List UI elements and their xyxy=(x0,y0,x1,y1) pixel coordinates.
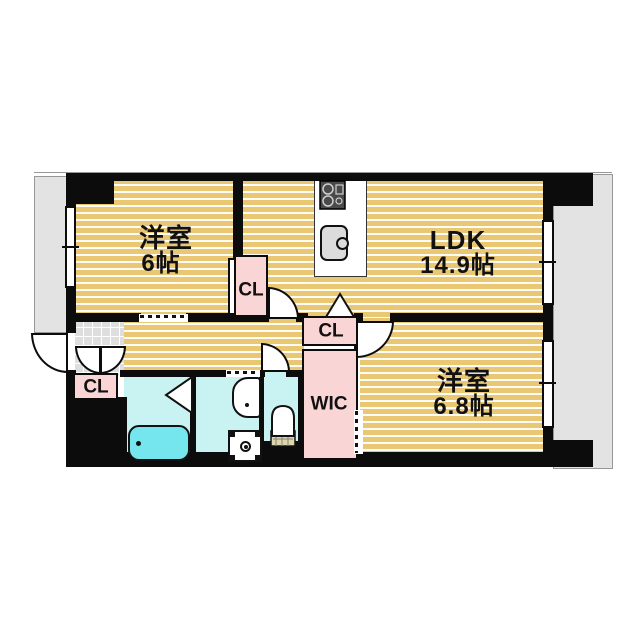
balcony-right xyxy=(553,174,613,469)
bedroom1-name-label: 洋室 xyxy=(139,225,193,251)
balcony-left xyxy=(34,176,69,333)
toilet-icon xyxy=(266,404,300,450)
closet-ldk-folding-door xyxy=(324,292,356,319)
bedroom2-size-label: 6.8帖 xyxy=(433,395,494,419)
bedroom2-name-label: 洋室 xyxy=(437,368,491,394)
floorplan: 洋室 6帖 LDK 14.9帖 洋室 6.8帖 CL CL CL WIC xyxy=(0,0,640,640)
wic-label: WIC xyxy=(311,395,348,414)
bedroom1-sliding-door xyxy=(139,314,188,322)
closet-bedroom1-label: CL xyxy=(238,281,263,300)
washroom-sliding-door xyxy=(226,370,260,377)
window-bedroom2 xyxy=(542,340,554,428)
gas-stove-icon xyxy=(319,180,346,210)
ldk-size-label: 14.9帖 xyxy=(420,254,496,278)
washbasin-icon xyxy=(232,377,261,418)
bedroom1-size-label: 6帖 xyxy=(141,252,180,276)
ldk-name-label: LDK xyxy=(430,227,486,253)
closet-bedroom1-door xyxy=(228,258,236,315)
wic-sliding-door xyxy=(354,410,363,454)
closet-ldk-label: CL xyxy=(318,322,343,341)
bathroom-folding-door xyxy=(164,375,194,415)
entrance-door-swing xyxy=(31,333,68,373)
closet-entrance-label: CL xyxy=(83,378,108,397)
